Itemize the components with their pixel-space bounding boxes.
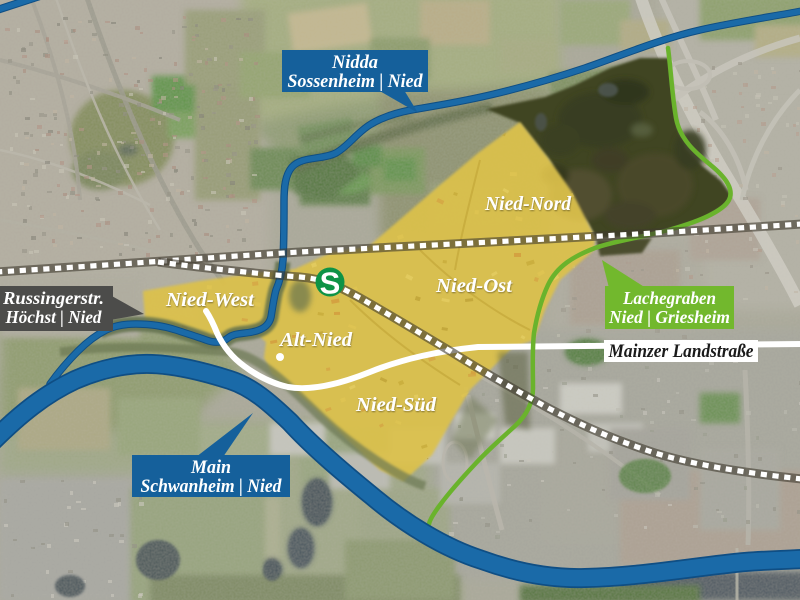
svg-text:Mainzer Landstraße: Mainzer Landstraße (608, 342, 754, 362)
svg-text:Nied | Griesheim: Nied | Griesheim (608, 307, 730, 327)
svg-text:Russingerstr.: Russingerstr. (2, 288, 104, 308)
svg-text:Nied-Nord: Nied-Nord (484, 193, 572, 215)
svg-text:Nied-Süd: Nied-Süd (355, 394, 437, 416)
svg-text:Nied-Ost: Nied-Ost (435, 275, 514, 297)
svg-text:Nied-West: Nied-West (165, 289, 256, 311)
svg-text:Höchst | Nied: Höchst | Nied (5, 307, 103, 327)
svg-text:Lachegraben: Lachegraben (622, 288, 716, 308)
svg-text:S: S (320, 266, 341, 301)
svg-text:Nidda: Nidda (331, 52, 378, 73)
svg-text:Alt-Nied: Alt-Nied (278, 329, 353, 351)
svg-text:Sossenheim | Nied: Sossenheim | Nied (288, 71, 423, 92)
svg-text:Main: Main (190, 457, 231, 478)
svg-text:Schwanheim | Nied: Schwanheim | Nied (141, 476, 282, 497)
